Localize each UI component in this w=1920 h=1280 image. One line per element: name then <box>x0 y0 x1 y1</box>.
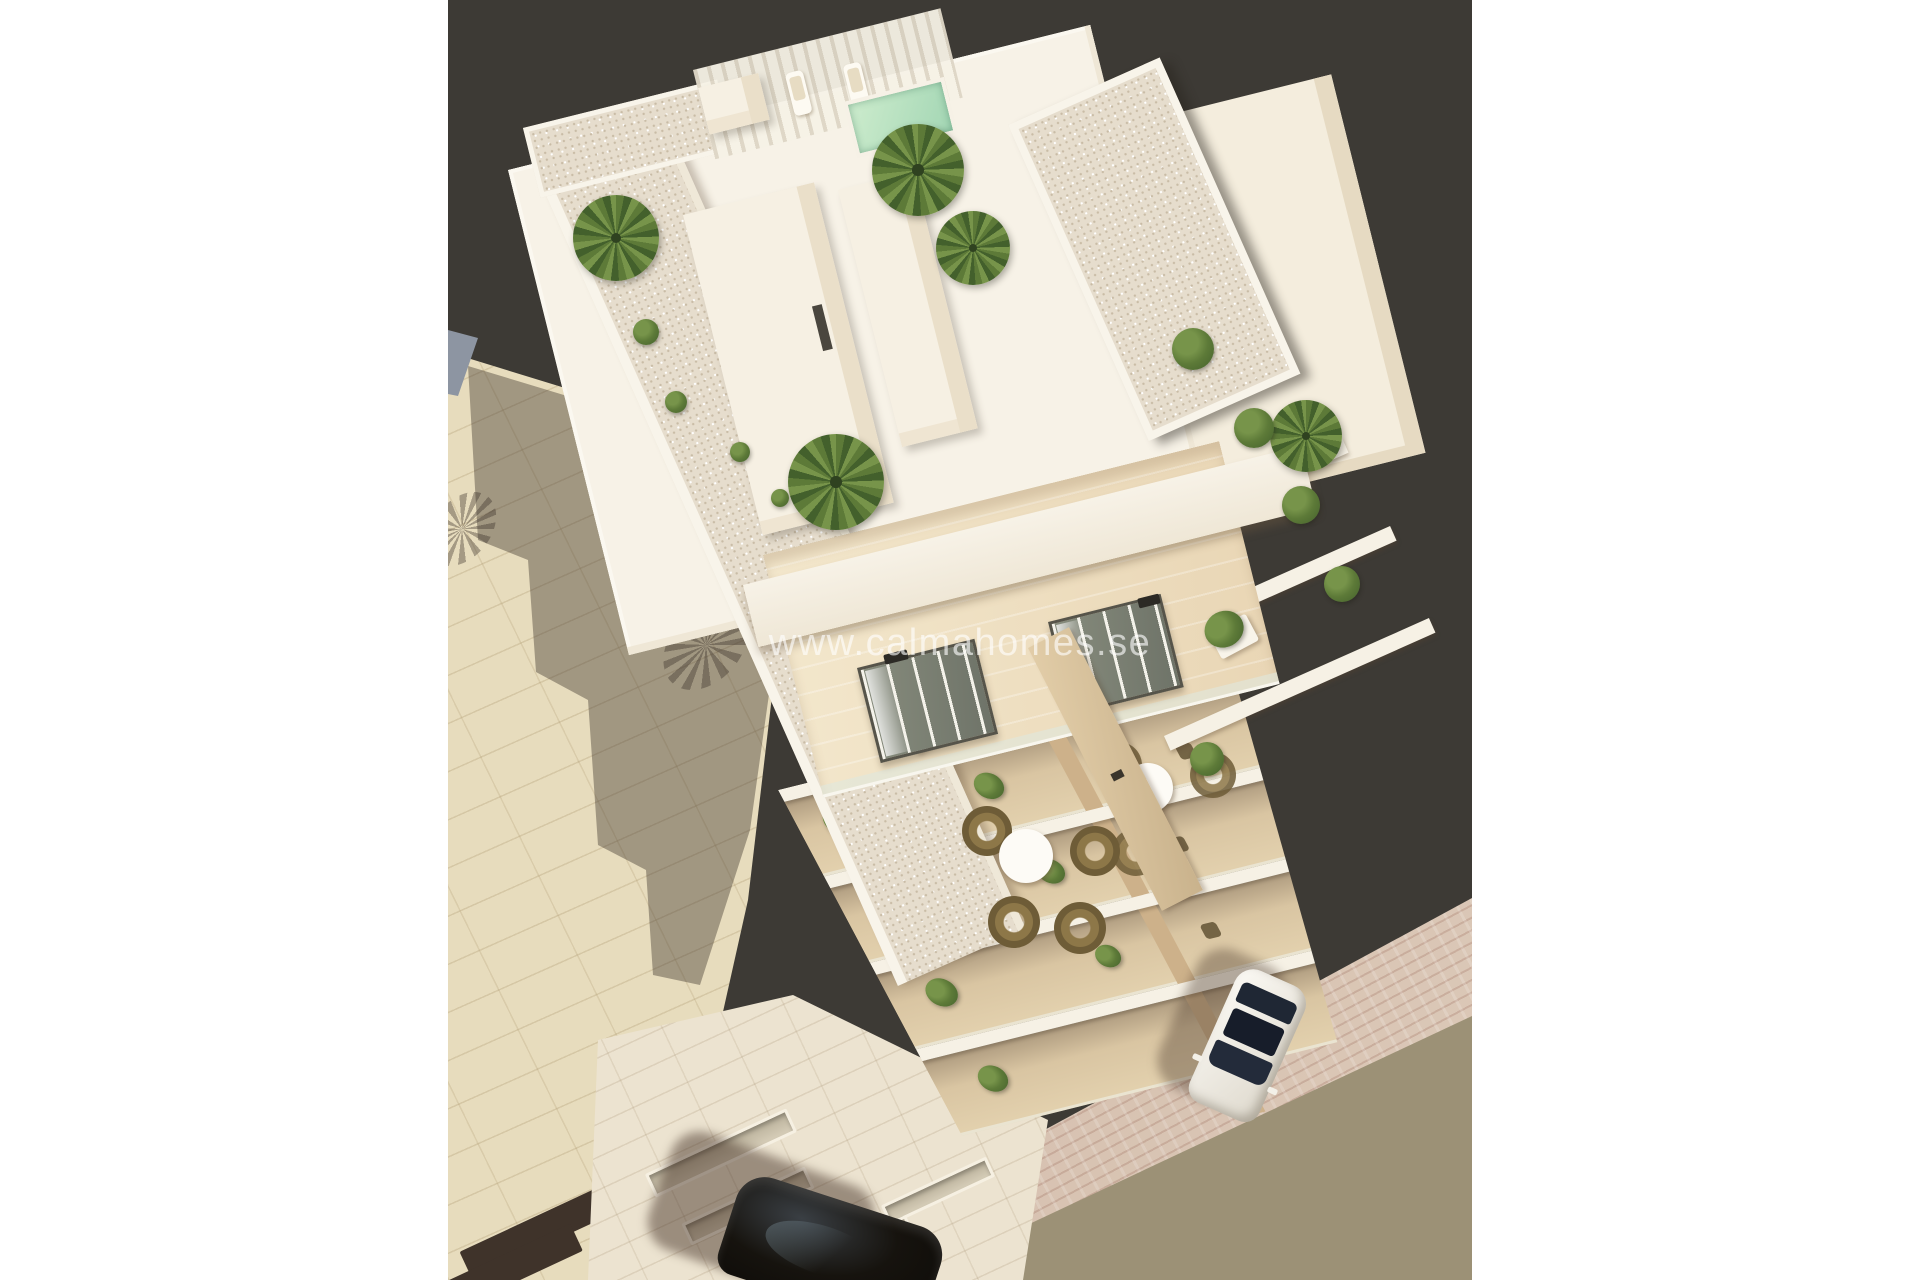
palm-tree <box>573 195 659 281</box>
terrace-planter <box>1208 613 1259 659</box>
rattan-chair <box>988 896 1040 948</box>
balcony-plant <box>920 975 964 1010</box>
balcony-plant <box>969 770 1010 802</box>
divider-lamp <box>1110 769 1124 782</box>
watermark: www.calmahomes.se <box>769 622 1151 665</box>
right-terrace-plant <box>1234 408 1274 448</box>
round-table <box>999 829 1053 883</box>
balcony-chair <box>1199 921 1222 939</box>
roof-shrub <box>665 391 687 413</box>
roof-shrub <box>771 489 789 507</box>
palm-tree <box>872 124 964 216</box>
balcony-plant <box>973 1062 1014 1094</box>
sun-lounger <box>785 70 813 117</box>
rattan-chair <box>1054 902 1106 954</box>
right-terrace-plant <box>1324 566 1360 602</box>
canvas: www.calmahomes.se <box>0 0 1920 1280</box>
planter-shrub <box>1198 604 1250 655</box>
palm-tree <box>1270 400 1342 472</box>
palm-tree <box>788 434 884 530</box>
core-door <box>812 304 833 351</box>
rattan-chair <box>1070 826 1120 876</box>
right-terrace-plant <box>1190 742 1224 776</box>
render-photo: www.calmahomes.se <box>448 0 1472 1280</box>
roof-shrub <box>730 442 750 462</box>
palm-tree <box>936 211 1010 285</box>
right-terrace-plant <box>1172 328 1214 370</box>
roof-shrub <box>633 319 659 345</box>
right-terrace-plant <box>1282 486 1320 524</box>
